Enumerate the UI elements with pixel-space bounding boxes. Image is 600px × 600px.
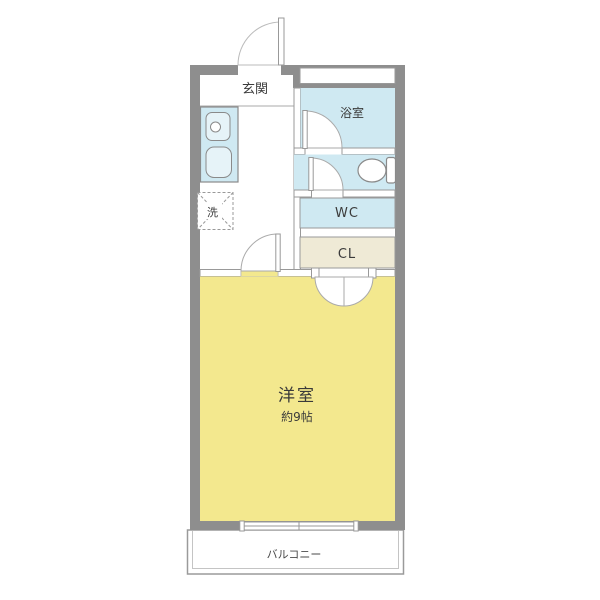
entrance-label: 玄関 [242,82,268,97]
wall-toilet-bottom-left [294,190,312,197]
closet-label: CL [338,247,356,262]
wall-bath-bottom-right [342,148,395,155]
toilet-door [309,158,313,191]
burner-circle-icon [211,122,221,132]
floorplan-drawing: 玄関 浴室 洗 WC CL 洋室 約9帖 バルコニー [0,0,600,600]
wall-living-top-left [200,270,241,277]
balcony-label: バルコニー [267,548,322,561]
living-room-size: 約9帖 [281,409,313,424]
top-window [300,68,395,84]
kitchen-sink-icon [206,147,232,178]
living-door-swing [241,234,278,271]
wall-toilet-bottom-right [343,190,395,197]
wall-living-top-mid [278,270,315,277]
wall-top-mid [281,65,293,75]
laundry-label: 洗 [207,206,218,219]
bathroom-label: 浴室 [340,105,364,120]
wall-right [395,65,405,530]
floorplan-canvas: 玄関 浴室 洗 WC CL 洋室 約9帖 バルコニー [0,0,600,600]
toilet-icon [358,158,396,184]
balcony-sliding-window [240,521,358,531]
wall-left [190,65,200,530]
wc-label: WC [335,206,359,221]
bathroom-door [303,111,307,149]
wall-top-left [190,65,238,75]
living-door [276,234,280,272]
entrance-door-swing [238,22,281,65]
living-room-label: 洋室 [278,386,316,406]
entrance-door [279,18,285,65]
